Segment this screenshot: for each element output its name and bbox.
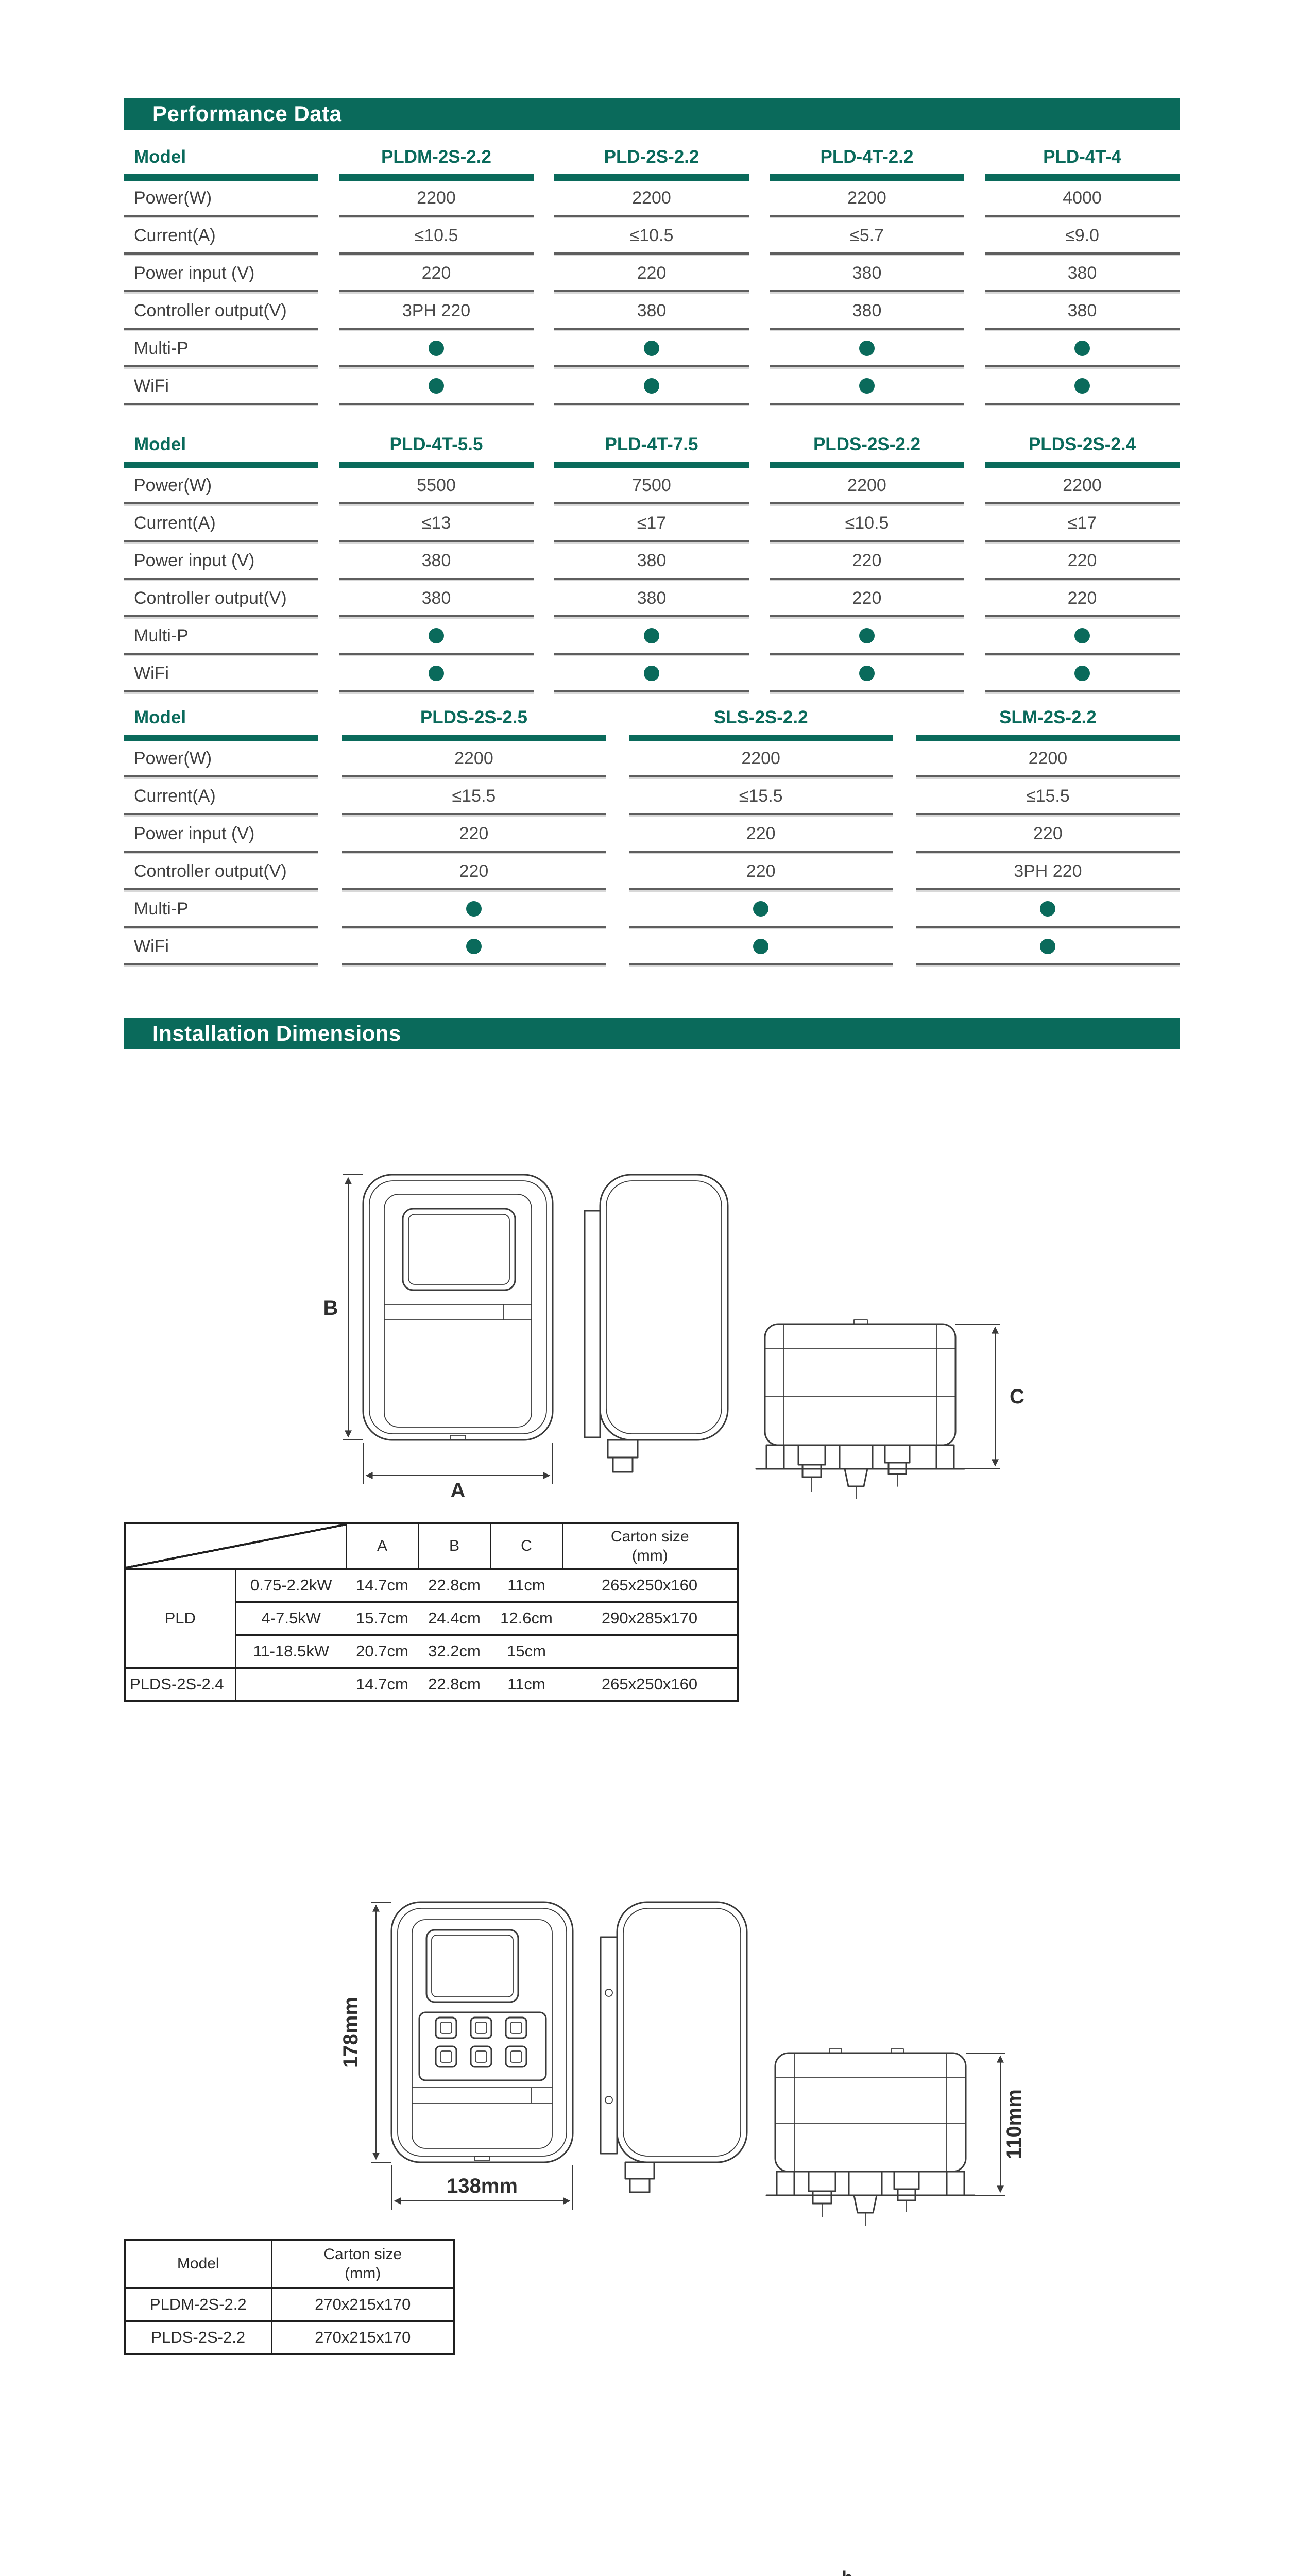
feature-cell	[770, 628, 964, 643]
drawing-shape	[384, 1304, 532, 1320]
table-cell: 12.6cm	[490, 1602, 562, 1635]
table-row: Model Carton size(mm)	[125, 2240, 454, 2288]
multi-p-row: Multi-P	[124, 619, 1180, 653]
feature-cell	[985, 666, 1180, 681]
value-cell: 380	[554, 551, 749, 571]
drawing-shape	[775, 2053, 966, 2172]
separator-line	[770, 540, 964, 542]
separator-line	[554, 540, 749, 542]
value-cell: ≤15.5	[342, 786, 605, 806]
current-a-row: Current(A)≤13≤17≤10.5≤17	[124, 506, 1180, 540]
diagonal-header-cell	[125, 1523, 346, 1569]
feature-dot	[1040, 939, 1055, 954]
separator-line	[770, 215, 964, 217]
row-separator	[124, 328, 1180, 331]
col-header-c: C	[490, 1523, 562, 1569]
drawing-shape	[506, 2046, 526, 2067]
value-cell: 220	[629, 824, 893, 844]
feature-cell	[339, 341, 534, 356]
col-header-b: B	[418, 1523, 490, 1569]
drawing-shape	[475, 2157, 489, 2161]
separator-line	[554, 403, 749, 405]
value-cell: ≤17	[985, 513, 1180, 533]
value-cell: 2200	[554, 188, 749, 208]
value-cell: ≤10.5	[554, 226, 749, 246]
column-underline-bar	[770, 462, 964, 468]
feature-cell	[342, 939, 605, 954]
separator-line	[124, 615, 318, 617]
feature-dot	[859, 378, 875, 394]
drawing-shape	[854, 2195, 877, 2213]
table-cell: PLDS-2S-2.2	[125, 2321, 271, 2354]
model-name: SLM-2S-2.2	[916, 707, 1180, 728]
model-name: PLDS-2S-2.2	[770, 434, 964, 455]
separator-line	[985, 252, 1180, 255]
row-label: WiFi	[124, 376, 318, 396]
drawing-shape	[608, 1440, 638, 1458]
value-cell: ≤13	[339, 513, 534, 533]
installation-section-header: Installation Dimensions	[124, 1018, 1180, 1049]
drawing-shape	[813, 2191, 831, 2204]
separator-line	[124, 690, 318, 692]
value-cell: ≤15.5	[916, 786, 1180, 806]
feature-cell	[916, 939, 1180, 954]
drawing-shape	[450, 1435, 466, 1439]
separator-line	[629, 851, 893, 853]
value-cell: 220	[554, 263, 749, 283]
separator-line	[554, 365, 749, 367]
feature-dot	[644, 341, 659, 356]
separator-line	[629, 813, 893, 815]
power-input-row: Power input (V)220220220	[124, 817, 1180, 851]
feature-cell	[554, 628, 749, 643]
separator-line	[339, 252, 534, 255]
separator-line	[124, 578, 318, 580]
value-cell: 380	[770, 263, 964, 283]
separator-line	[629, 888, 893, 890]
separator-line	[342, 851, 605, 853]
separator-line	[339, 290, 534, 292]
feature-dot	[859, 666, 875, 681]
table-cell: 22.8cm	[418, 1569, 490, 1602]
feature-dot	[859, 628, 875, 643]
model-name: PLDM-2S-2.2	[339, 147, 534, 167]
row-label: WiFi	[124, 937, 318, 957]
model-column-header: Model	[124, 707, 318, 728]
feature-dot	[466, 939, 482, 954]
drawing-shape	[440, 2022, 452, 2033]
value-cell: 220	[342, 824, 605, 844]
separator-line	[985, 328, 1180, 330]
separator-line	[554, 502, 749, 504]
row-label: Power(W)	[124, 749, 318, 769]
table-cell: 265x250x160	[562, 1668, 738, 1701]
separator-line	[985, 540, 1180, 542]
drawing-shape	[809, 2172, 835, 2191]
model-header-row: ModelPLD-4T-5.5PLD-4T-7.5PLDS-2S-2.2PLDS…	[124, 428, 1180, 462]
feature-dot	[1074, 378, 1090, 394]
drawing-shape	[617, 1902, 747, 2162]
value-cell: 3PH 220	[916, 861, 1180, 882]
dim-label-width: 138mm	[447, 2175, 518, 2197]
separator-line	[770, 365, 964, 367]
value-cell: ≤17	[554, 513, 749, 533]
row-label: Power input (V)	[124, 263, 318, 283]
drawing-shape	[849, 2172, 882, 2195]
feature-dot	[429, 666, 444, 681]
row-separator	[124, 252, 1180, 256]
drawing-shape	[475, 2051, 487, 2062]
value-cell: 220	[339, 263, 534, 283]
wifi-row: WiFi	[124, 369, 1180, 403]
value-cell: 4000	[985, 188, 1180, 208]
row-separator	[124, 403, 1180, 406]
drawing-shape	[775, 2053, 966, 2172]
value-cell: 2200	[339, 188, 534, 208]
wifi-row: WiFi	[124, 929, 1180, 963]
feature-cell	[985, 628, 1180, 643]
element: (mm)	[272, 2264, 454, 2283]
separator-line	[342, 813, 605, 815]
separator-line	[124, 290, 318, 292]
col-header-model: Model	[125, 2240, 271, 2288]
model-name: PLD-4T-5.5	[339, 434, 534, 455]
power-input-row: Power input (V)380380220220	[124, 544, 1180, 578]
column-underline-bar	[339, 174, 534, 181]
separator-line	[124, 888, 318, 890]
separator-line	[985, 403, 1180, 405]
side-view-outline	[601, 1902, 747, 2192]
table-cell	[235, 1668, 346, 1701]
separator-line	[554, 290, 749, 292]
feature-cell	[629, 939, 893, 954]
column-underline-bar	[985, 174, 1180, 181]
separator-line	[554, 578, 749, 580]
separator-line	[770, 403, 964, 405]
value-cell: 380	[985, 301, 1180, 321]
element: (mm)	[563, 1546, 737, 1565]
column-underline-row	[124, 462, 1180, 468]
side-view-outline	[585, 1175, 728, 1472]
model-name: PLDS-2S-2.4	[985, 434, 1180, 455]
table-cell: 15.7cm	[346, 1602, 418, 1635]
power-input-row: Power input (V)220220380380	[124, 256, 1180, 290]
feature-dot	[644, 628, 659, 643]
value-cell: 220	[985, 551, 1180, 571]
separator-line	[916, 851, 1180, 853]
row-separator	[124, 690, 1180, 694]
column-underline-bar	[124, 735, 318, 741]
table-cell: 32.2cm	[418, 1635, 490, 1668]
drawing-shape	[510, 2051, 522, 2062]
separator-line	[770, 653, 964, 655]
front-view-outline	[363, 1175, 553, 1440]
col-header-a: A	[346, 1523, 418, 1569]
separator-line	[916, 775, 1180, 777]
value-cell: 380	[770, 301, 964, 321]
drawing-shape	[840, 1445, 873, 1469]
separator-line	[770, 290, 964, 292]
dim-label-depth: 110mm	[1003, 2089, 1026, 2159]
separator-line	[339, 215, 534, 217]
installation-section-title: Installation Dimensions	[152, 1021, 401, 1046]
separator-line	[916, 963, 1180, 965]
separator-line	[124, 851, 318, 853]
drawing-shape	[947, 2172, 964, 2195]
dim-label-height: 178mm	[339, 1997, 362, 2068]
feature-dot	[466, 901, 482, 917]
separator-line	[124, 365, 318, 367]
drawing-shape	[436, 2046, 456, 2067]
separator-line	[339, 653, 534, 655]
row-label: Controller output(V)	[124, 588, 318, 608]
separator-line	[770, 328, 964, 330]
separator-line	[770, 252, 964, 255]
drawing-shape	[440, 2051, 452, 2062]
separator-line	[124, 540, 318, 542]
column-underline-bar	[339, 462, 534, 468]
value-cell: 2200	[770, 476, 964, 496]
datasheet-page: Performance Data ModelPLDM-2S-2.2PLD-2S-…	[0, 0, 1298, 2576]
separator-line	[339, 690, 534, 692]
drawing-shape	[802, 1465, 821, 1477]
drawing-shape	[369, 1181, 546, 1434]
value-cell: 3PH 220	[339, 301, 534, 321]
row-separator	[124, 540, 1180, 544]
table-cell: 270x215x170	[271, 2321, 454, 2354]
row-separator	[124, 813, 1180, 817]
column-underline-bar	[629, 735, 893, 741]
table-cell: 24.4cm	[418, 1602, 490, 1635]
row-separator	[124, 963, 1180, 967]
motor-view-outline	[756, 1320, 964, 1499]
separator-line	[985, 690, 1180, 692]
feature-dot	[1040, 901, 1055, 917]
multi-p-row: Multi-P	[124, 892, 1180, 926]
drawing-shape	[605, 1989, 612, 1996]
col-header-carton: Carton size(mm)	[271, 2240, 454, 2288]
dim-label-b: b	[842, 2567, 853, 2576]
model-name: SLS-2S-2.2	[629, 707, 893, 728]
table-cell: 14.7cm	[346, 1668, 418, 1701]
drawing-shape	[798, 1445, 825, 1465]
feature-cell	[554, 378, 749, 394]
row-label: Power input (V)	[124, 551, 318, 571]
front-view-outline	[391, 1902, 573, 2162]
current-a-row: Current(A)≤15.5≤15.5≤15.5	[124, 779, 1180, 813]
model-name: PLDS-2S-2.5	[342, 707, 605, 728]
separator-line	[554, 615, 749, 617]
power-w-row: Power(W)220022002200	[124, 741, 1180, 775]
dimension-lines	[371, 1902, 1005, 2210]
drawing-shape	[936, 1445, 954, 1469]
value-cell: 2200	[629, 749, 893, 769]
separator-line	[985, 290, 1180, 292]
table-cell: 11-18.5kW	[235, 1635, 346, 1668]
value-cell: ≤9.0	[985, 226, 1180, 246]
element: Carton size	[272, 2245, 454, 2264]
separator-line	[124, 403, 318, 405]
separator-line	[985, 578, 1180, 580]
drawing-shape	[506, 2018, 526, 2038]
table-row: PLDS-2S-2.2270x215x170	[125, 2321, 454, 2354]
feature-dot	[644, 666, 659, 681]
table-cell: 270x215x170	[271, 2288, 454, 2321]
drawing-shape	[471, 2018, 491, 2038]
model-name: PLD-4T-7.5	[554, 434, 749, 455]
power-w-row: Power(W)5500750022002200	[124, 468, 1180, 502]
row-separator	[124, 775, 1180, 779]
drawing-shape	[412, 1920, 552, 2148]
feature-cell	[985, 341, 1180, 356]
separator-line	[339, 502, 534, 504]
row-separator	[124, 290, 1180, 294]
feature-cell	[554, 341, 749, 356]
column-underline-row	[124, 735, 1180, 741]
value-cell: 380	[985, 263, 1180, 283]
value-cell: ≤10.5	[770, 513, 964, 533]
dim-label-a: A	[451, 1479, 466, 1499]
column-underline-bar	[554, 174, 749, 181]
drawing-shape	[894, 2172, 919, 2189]
table-cell: 15cm	[490, 1635, 562, 1668]
separator-line	[629, 963, 893, 965]
separator-line	[124, 502, 318, 504]
group-label-pld: PLD	[125, 1569, 235, 1668]
multi-p-row: Multi-P	[124, 331, 1180, 365]
model-name: PLD-4T-2.2	[770, 147, 964, 167]
power-w-row: Power(W)2200220022004000	[124, 181, 1180, 215]
column-underline-bar	[916, 735, 1180, 741]
separator-line	[339, 615, 534, 617]
value-cell: 220	[342, 861, 605, 882]
separator-line	[985, 502, 1180, 504]
separator-line	[985, 365, 1180, 367]
row-separator	[124, 926, 1180, 929]
drawing-shape	[765, 1324, 955, 1445]
row-label: Multi-P	[124, 899, 318, 919]
table-cell: 0.75-2.2kW	[235, 1569, 346, 1602]
drawing-shape	[475, 2022, 487, 2033]
current-a-row: Current(A)≤10.5≤10.5≤5.7≤9.0	[124, 218, 1180, 252]
table-cell: 20.7cm	[346, 1635, 418, 1668]
feature-cell	[339, 628, 534, 643]
separator-line	[124, 813, 318, 815]
value-cell: 380	[339, 588, 534, 608]
feature-dot	[429, 628, 444, 643]
drawing-shape	[408, 1214, 509, 1284]
table-cell: 14.7cm	[346, 1569, 418, 1602]
drawing-shape	[371, 1902, 1005, 2210]
drawing-shape	[885, 1445, 910, 1463]
separator-line	[985, 215, 1180, 217]
value-cell: 2200	[342, 749, 605, 769]
separator-line	[342, 963, 605, 965]
drawing-shape	[343, 1175, 1000, 1484]
separator-line	[124, 215, 318, 217]
col-header-carton: Carton size(mm)	[562, 1523, 738, 1569]
row-label: Controller output(V)	[124, 861, 318, 882]
performance-table-2: ModelPLD-4T-5.5PLD-4T-7.5PLDS-2S-2.2PLDS…	[124, 428, 1180, 694]
wifi-row: WiFi	[124, 656, 1180, 690]
model-header-row: ModelPLDM-2S-2.2PLD-2S-2.2PLD-4T-2.2PLD-…	[124, 140, 1180, 174]
value-cell: 380	[339, 551, 534, 571]
drawing-shape	[606, 1181, 722, 1434]
drawing-control-box: h a b b1 a1 a2 a3 b2	[247, 2519, 1071, 2576]
feature-dot	[1074, 666, 1090, 681]
carton-size-table: Model Carton size(mm) PLDM-2S-2.2270x215…	[124, 2239, 455, 2355]
model-name: PLD-4T-4	[985, 147, 1180, 167]
separator-line	[124, 775, 318, 777]
table-cell	[562, 1635, 738, 1668]
row-label: Multi-P	[124, 338, 318, 359]
row-separator	[124, 615, 1180, 619]
drawing-shape	[601, 1937, 617, 2154]
model-cell: PLDS-2S-2.4	[125, 1668, 235, 1701]
feature-cell	[339, 378, 534, 394]
value-cell: 220	[770, 551, 964, 571]
model-name: PLD-2S-2.2	[554, 147, 749, 167]
row-label: Controller output(V)	[124, 301, 318, 321]
value-cell: 5500	[339, 476, 534, 496]
feature-cell	[770, 341, 964, 356]
feature-cell	[985, 378, 1180, 394]
row-label: WiFi	[124, 664, 318, 684]
column-underline-bar	[342, 735, 605, 741]
feature-cell	[770, 666, 964, 681]
row-separator	[124, 502, 1180, 506]
feature-dot	[429, 378, 444, 394]
value-cell: ≤15.5	[629, 786, 893, 806]
table-cell: PLDM-2S-2.2	[125, 2288, 271, 2321]
table-row: A B C Carton size(mm)	[125, 1523, 738, 1569]
drawing-shape	[625, 2162, 654, 2179]
separator-line	[916, 813, 1180, 815]
feature-dot	[753, 939, 768, 954]
row-separator	[124, 215, 1180, 218]
separator-line	[985, 653, 1180, 655]
motor-view-outline	[766, 2049, 975, 2226]
table-row: PLD 0.75-2.2kW 14.7cm 22.8cm 11cm 265x25…	[125, 1569, 738, 1602]
performance-table-3: ModelPLDS-2S-2.5SLS-2S-2.2SLM-2S-2.2Powe…	[124, 701, 1180, 967]
separator-line	[342, 888, 605, 890]
drawing-shape	[398, 1908, 567, 2156]
table-cell: 4-7.5kW	[235, 1602, 346, 1635]
column-underline-bar	[124, 174, 318, 181]
drawing-shape	[630, 2179, 650, 2192]
separator-line	[554, 653, 749, 655]
column-underline-bar	[554, 462, 749, 468]
row-label: Power(W)	[124, 188, 318, 208]
separator-line	[770, 578, 964, 580]
separator-line	[342, 926, 605, 928]
table-row: PLDM-2S-2.2270x215x170	[125, 2288, 454, 2321]
row-separator	[124, 653, 1180, 656]
separator-line	[339, 365, 534, 367]
feature-dot	[644, 378, 659, 394]
row-separator	[124, 888, 1180, 892]
table-cell: 265x250x160	[562, 1569, 738, 1602]
feature-dot	[753, 901, 768, 917]
separator-line	[339, 578, 534, 580]
row-label: Power input (V)	[124, 824, 318, 844]
drawing-shape	[471, 2046, 491, 2067]
value-cell: 220	[985, 588, 1180, 608]
separator-line	[554, 690, 749, 692]
separator-line	[554, 252, 749, 255]
performance-table-1: ModelPLDM-2S-2.2PLD-2S-2.2PLD-4T-2.2PLD-…	[124, 140, 1180, 406]
value-cell: 2200	[770, 188, 964, 208]
